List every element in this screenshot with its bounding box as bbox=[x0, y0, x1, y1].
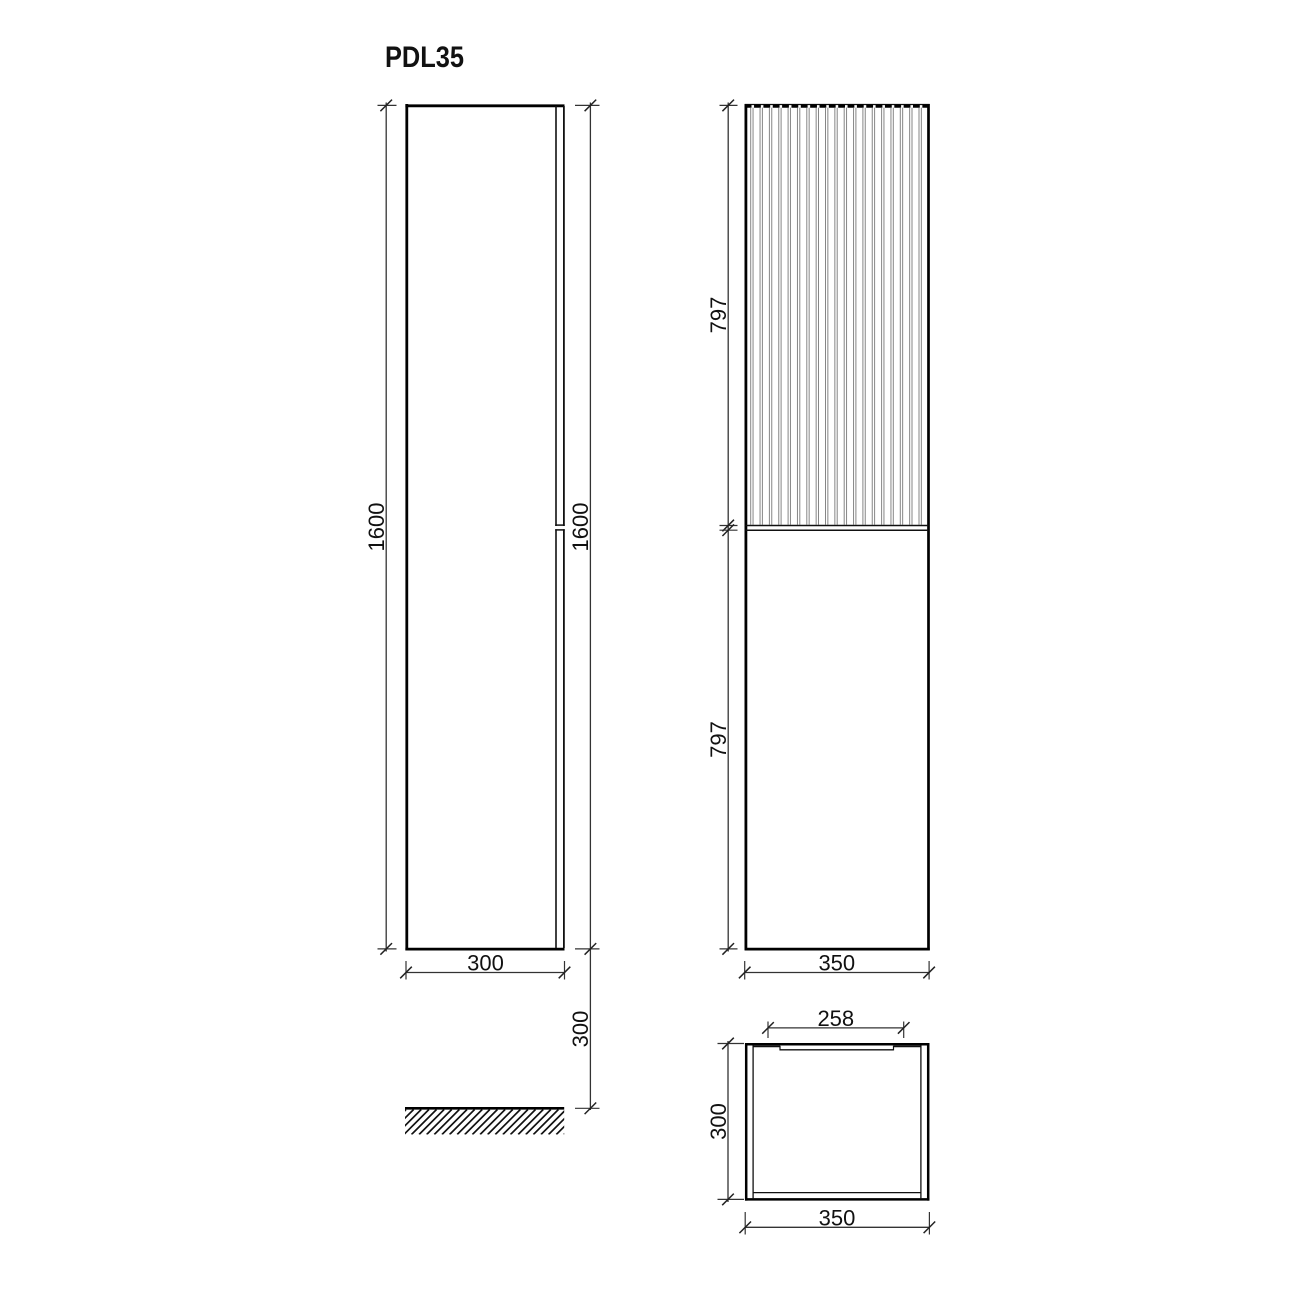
svg-text:350: 350 bbox=[819, 1205, 856, 1230]
svg-text:350: 350 bbox=[818, 951, 855, 976]
svg-text:1600: 1600 bbox=[364, 503, 389, 552]
svg-text:797: 797 bbox=[706, 721, 731, 758]
svg-text:PDL35: PDL35 bbox=[385, 41, 464, 74]
svg-text:797: 797 bbox=[706, 297, 731, 334]
svg-text:300: 300 bbox=[467, 951, 504, 976]
svg-text:1600: 1600 bbox=[568, 503, 593, 552]
svg-text:258: 258 bbox=[817, 1006, 854, 1031]
svg-text:300: 300 bbox=[568, 1011, 593, 1048]
svg-text:300: 300 bbox=[706, 1103, 731, 1140]
